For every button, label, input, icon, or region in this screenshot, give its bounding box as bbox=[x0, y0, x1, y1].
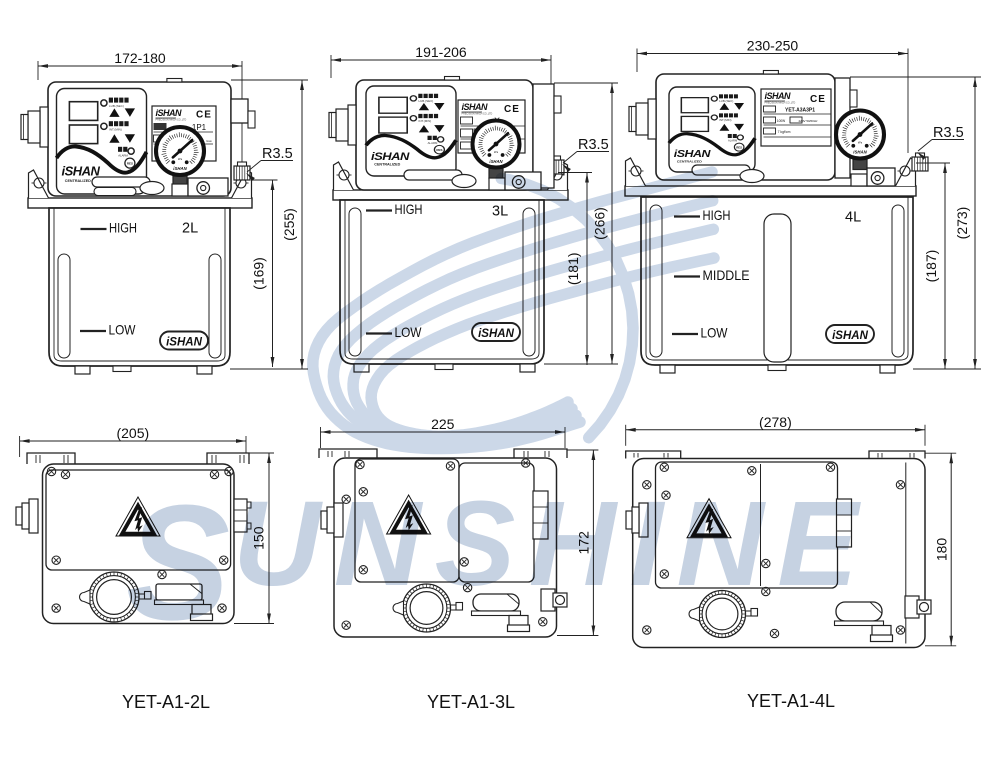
svg-text:iSHAN: iSHAN bbox=[156, 108, 183, 118]
svg-text:191-206: 191-206 bbox=[415, 44, 467, 60]
svg-text:iSHAN: iSHAN bbox=[173, 166, 187, 171]
svg-text:LUB.(SEC): LUB.(SEC) bbox=[419, 99, 434, 103]
svg-text:INT.(MIN): INT.(MIN) bbox=[719, 118, 731, 122]
svg-text:(278): (278) bbox=[759, 414, 792, 430]
svg-text:UNSHINE: UNSHINE bbox=[233, 475, 871, 611]
svg-text:kPa: kPa bbox=[178, 158, 183, 161]
svg-text:S: S bbox=[126, 471, 230, 654]
svg-text:iSHAN: iSHAN bbox=[478, 328, 515, 340]
svg-text:INT.(MIN): INT.(MIN) bbox=[109, 128, 122, 132]
svg-text:CENTRALIZED: CENTRALIZED bbox=[677, 160, 703, 164]
svg-text:MIDDLE: MIDDLE bbox=[703, 267, 750, 283]
svg-text:iSHAN: iSHAN bbox=[462, 102, 489, 112]
svg-text:ALARM: ALARM bbox=[118, 153, 128, 157]
svg-text:(169): (169) bbox=[251, 257, 267, 290]
svg-text:RES: RES bbox=[436, 148, 442, 152]
svg-text:2L: 2L bbox=[182, 221, 198, 237]
svg-text:iSHAN: iSHAN bbox=[765, 91, 792, 101]
svg-text:CE: CE bbox=[504, 104, 520, 115]
svg-text:(273): (273) bbox=[954, 207, 970, 240]
svg-text:iSHAN: iSHAN bbox=[674, 149, 711, 160]
svg-text:INT.(MIN): INT.(MIN) bbox=[419, 119, 432, 123]
svg-text:CE: CE bbox=[810, 94, 826, 105]
svg-text:172-180: 172-180 bbox=[114, 50, 166, 66]
svg-text:iSHAN: iSHAN bbox=[62, 164, 101, 179]
svg-text:4L: 4L bbox=[845, 210, 861, 226]
svg-text:ALARM: ALARM bbox=[728, 140, 737, 143]
svg-text:iSHAN: iSHAN bbox=[371, 150, 410, 163]
svg-text:iSHAN: iSHAN bbox=[166, 337, 203, 349]
svg-text:PRECISION MACH CO.,LTD: PRECISION MACH CO.,LTD bbox=[462, 113, 493, 116]
svg-text:(205): (205) bbox=[116, 425, 149, 441]
svg-text:220V 50/60Hz: 220V 50/60Hz bbox=[798, 119, 818, 123]
svg-text:180: 180 bbox=[934, 538, 950, 562]
svg-text:HIGH: HIGH bbox=[395, 201, 423, 217]
svg-text:LUB.(SEC): LUB.(SEC) bbox=[719, 99, 733, 103]
svg-text:LUB.(SEC): LUB.(SEC) bbox=[109, 104, 124, 108]
svg-text:230-250: 230-250 bbox=[747, 38, 799, 54]
svg-text:(255): (255) bbox=[281, 208, 297, 241]
svg-text:3L: 3L bbox=[492, 204, 508, 220]
svg-text:CE: CE bbox=[196, 110, 212, 121]
svg-text:kPa: kPa bbox=[858, 142, 863, 145]
svg-text:CENTRALIZED: CENTRALIZED bbox=[65, 179, 91, 183]
svg-text:CENTRALIZED: CENTRALIZED bbox=[374, 163, 401, 167]
svg-text:kPa: kPa bbox=[494, 152, 499, 154]
svg-text:YET-A1-3L: YET-A1-3L bbox=[427, 691, 515, 712]
svg-text:iSHAN: iSHAN bbox=[489, 159, 503, 164]
svg-text:YET-A1-2L: YET-A1-2L bbox=[122, 691, 210, 712]
svg-text:LOW: LOW bbox=[701, 325, 729, 341]
svg-text:Imax: Imax bbox=[206, 139, 212, 143]
svg-text:100W: 100W bbox=[777, 119, 785, 123]
svg-text:PRECISION MACH CO.,LTD: PRECISION MACH CO.,LTD bbox=[765, 102, 796, 105]
svg-text:225: 225 bbox=[431, 416, 455, 432]
svg-text:YET-A3A3P1: YET-A3A3P1 bbox=[785, 108, 815, 114]
svg-text:HIGH: HIGH bbox=[109, 220, 137, 236]
svg-text:R3.5: R3.5 bbox=[933, 125, 964, 141]
svg-text:R3.5: R3.5 bbox=[578, 137, 609, 153]
svg-text:iSHAN: iSHAN bbox=[853, 150, 867, 155]
svg-text:R3.5: R3.5 bbox=[262, 146, 293, 162]
svg-text:YET-A1-4L: YET-A1-4L bbox=[747, 690, 835, 711]
svg-text:LOW: LOW bbox=[109, 322, 137, 338]
svg-text:ALARM: ALARM bbox=[428, 141, 438, 145]
svg-text:HIGH: HIGH bbox=[703, 207, 731, 223]
svg-text:RES: RES bbox=[736, 146, 742, 150]
svg-text:PRECISION MACH CO.,LTD: PRECISION MACH CO.,LTD bbox=[156, 119, 187, 122]
svg-text:iSHAN: iSHAN bbox=[832, 330, 869, 342]
svg-text:7 kgf/cm: 7 kgf/cm bbox=[778, 130, 791, 134]
svg-text:RES: RES bbox=[127, 162, 133, 166]
svg-text:(187): (187) bbox=[923, 250, 939, 283]
